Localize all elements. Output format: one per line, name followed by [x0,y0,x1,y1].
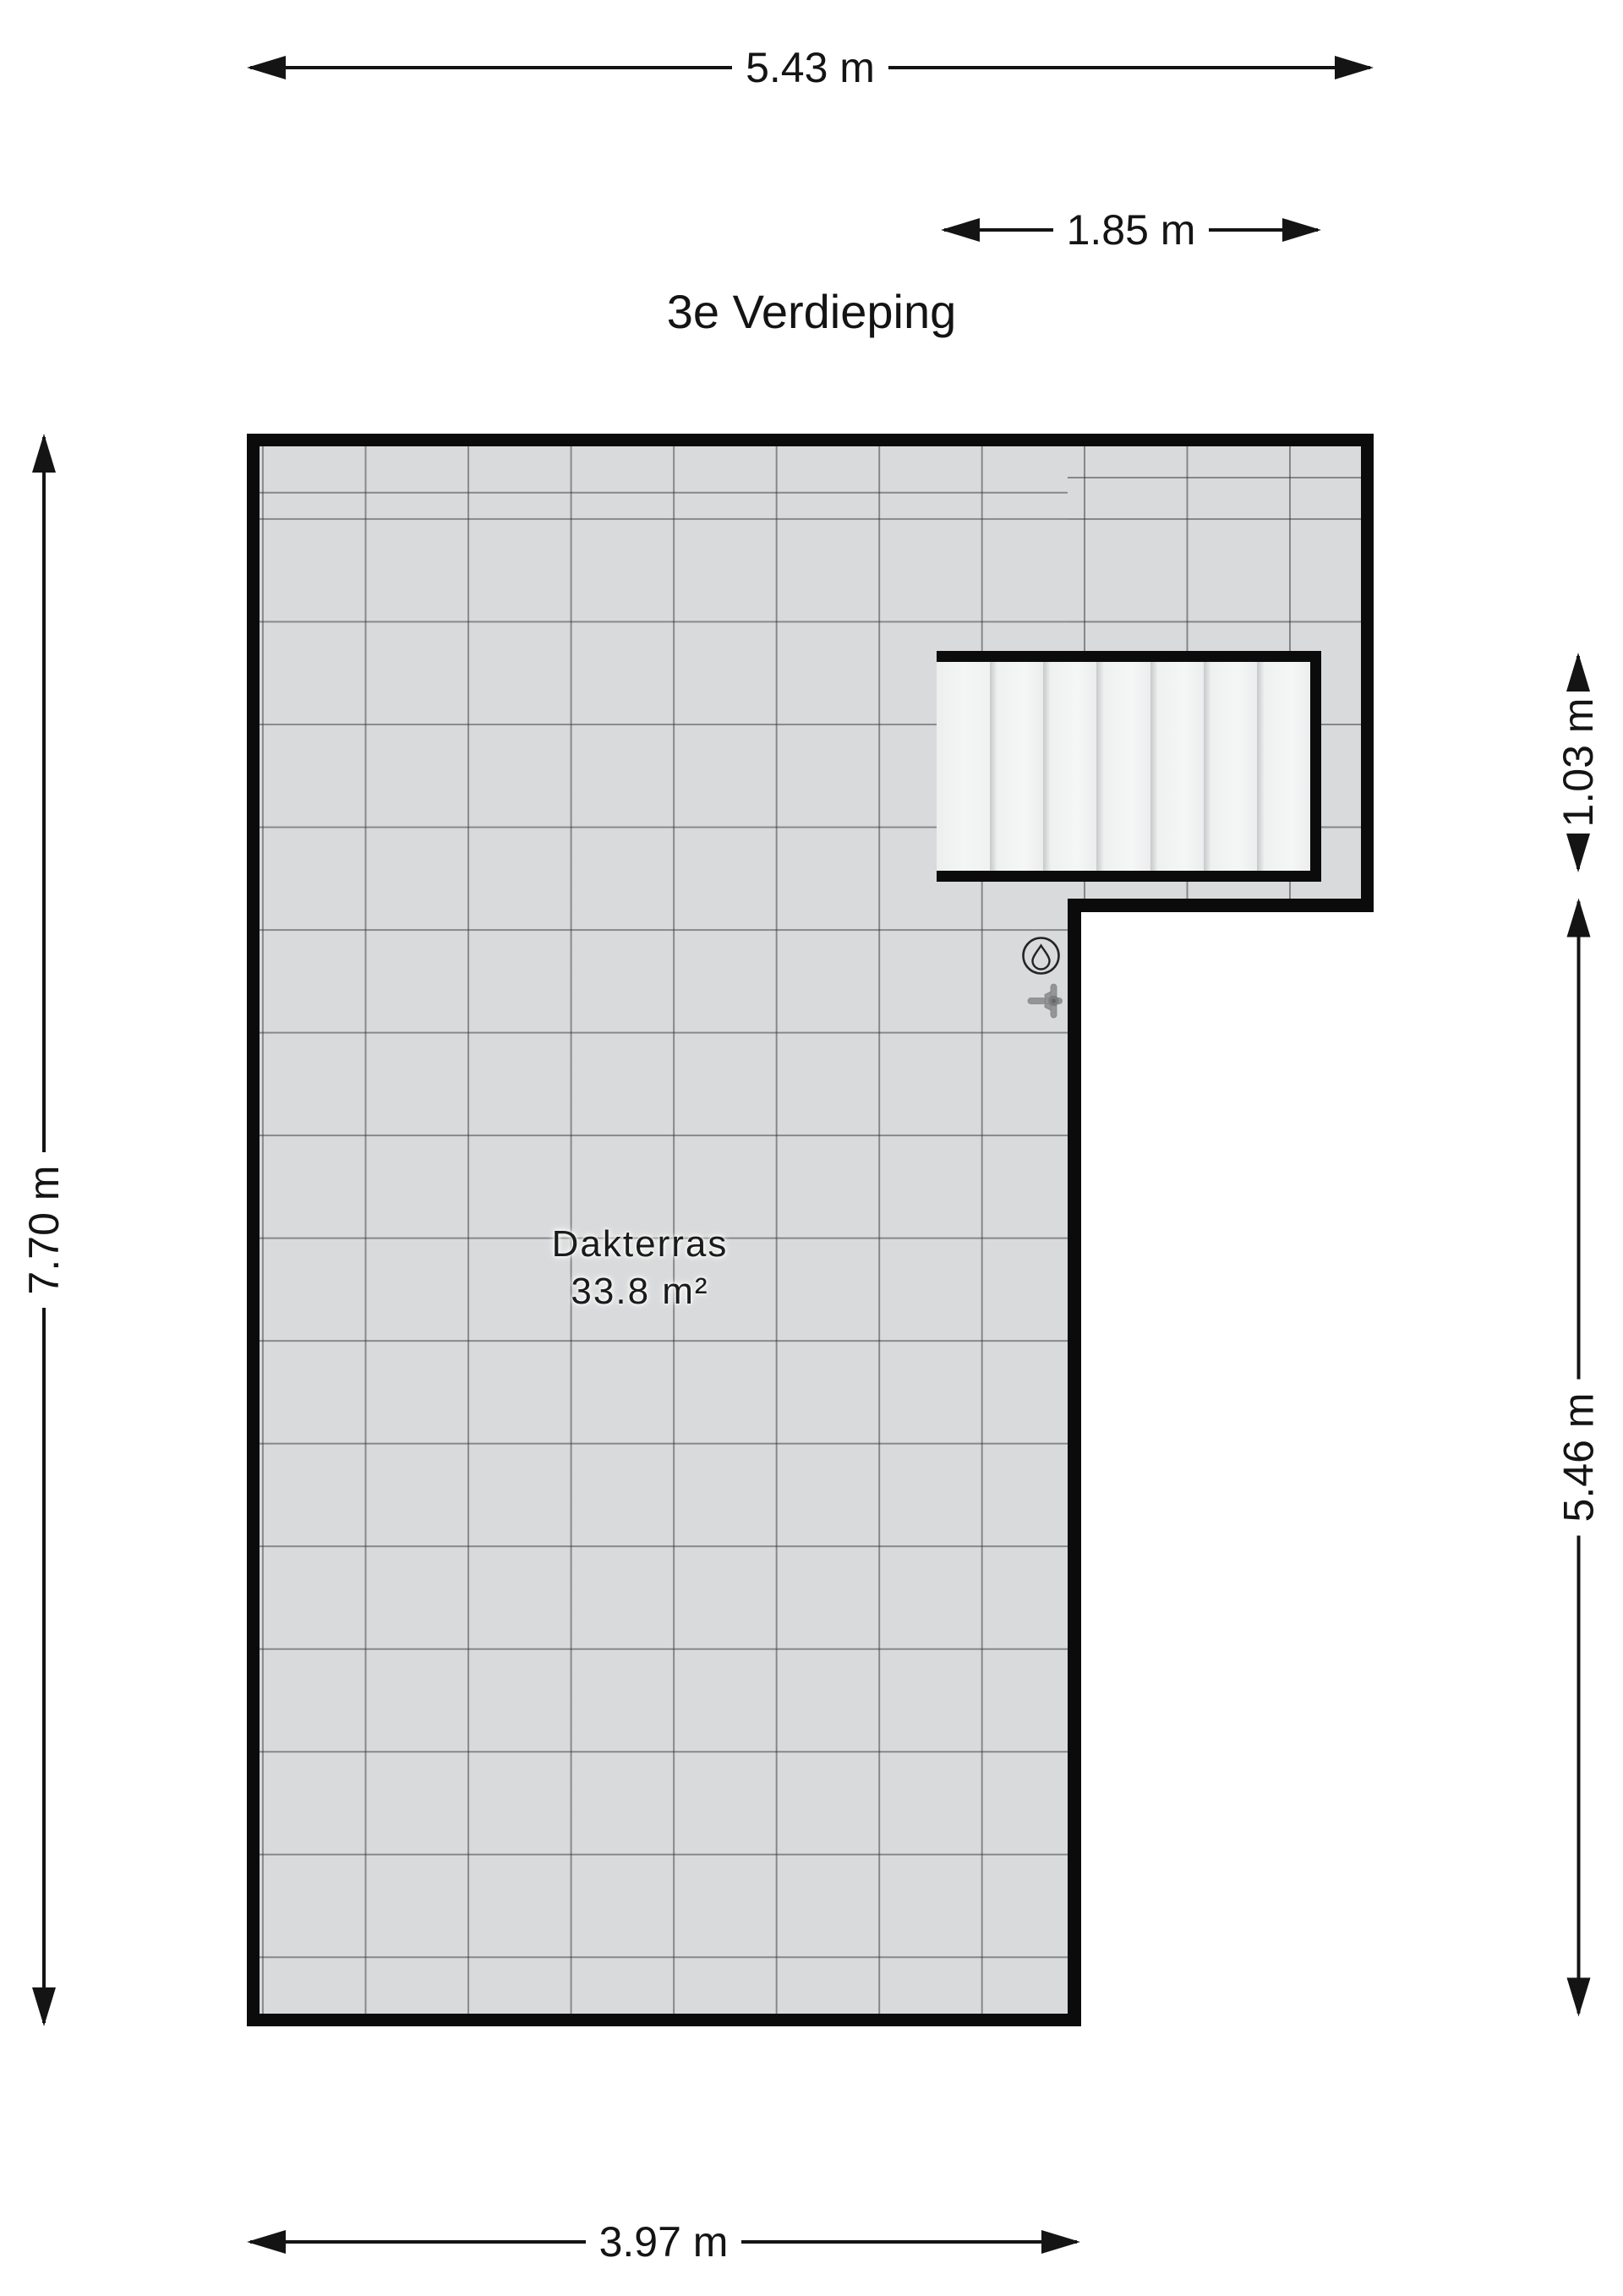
faucet-icon [1027,981,1066,1020]
stair-tread [1257,662,1310,871]
dimension-label: 5.46 m [1555,1380,1604,1536]
dimension-terrace-height: 5.46 m [1554,899,1604,2017]
stair-wall-bottom [937,871,1321,882]
dimension-left-height: 7.70 m [19,434,69,2026]
arrow-right-icon [1041,2230,1080,2254]
floor-title: 3e Verdieping [473,284,1150,339]
arrow-up-icon [1567,899,1591,938]
wall-notch-horizontal [1068,899,1374,912]
stair-tread [990,662,1043,871]
dimension-label: 1.03 m [1554,692,1603,834]
wall-notch-vertical [1068,899,1081,2026]
room-label: Dakterras 33.8 m² [429,1221,851,1315]
wall-right [1361,434,1374,911]
room-name: Dakterras [429,1221,851,1268]
dimension-bottom-width: 3.97 m [247,2217,1080,2267]
wall-top [247,434,1374,446]
stair-wall-top [937,651,1321,662]
wall-left [247,434,260,2026]
arrow-up-icon [1566,653,1590,692]
dimension-stairs-height: 1.03 m [1553,653,1604,872]
room-area: 33.8 m² [429,1268,851,1315]
arrow-right-icon [1282,218,1321,242]
dimension-label: 7.70 m [19,1152,68,1309]
stair-tread [1150,662,1204,871]
stair-tread [1043,662,1096,871]
floorplan-canvas: 3e Verdieping 5.43 m 1.85 m [0,0,1623,2296]
water-drain-icon [1021,936,1061,976]
stair-tread [1096,662,1150,871]
dimension-stairs-width: 1.85 m [941,205,1321,255]
stair-tread [1204,662,1257,871]
stair-tread [937,662,990,871]
wall-bottom [247,2014,1080,2026]
arrow-up-icon [32,434,56,473]
dimension-top-width: 5.43 m [247,42,1374,93]
arrow-right-icon [1335,56,1374,79]
dimension-label: 3.97 m [586,2217,742,2266]
stair-treads [937,662,1310,871]
stair-wall-right [1310,651,1321,882]
dimension-label: 5.43 m [732,43,888,92]
dimension-label: 1.85 m [1053,205,1210,254]
